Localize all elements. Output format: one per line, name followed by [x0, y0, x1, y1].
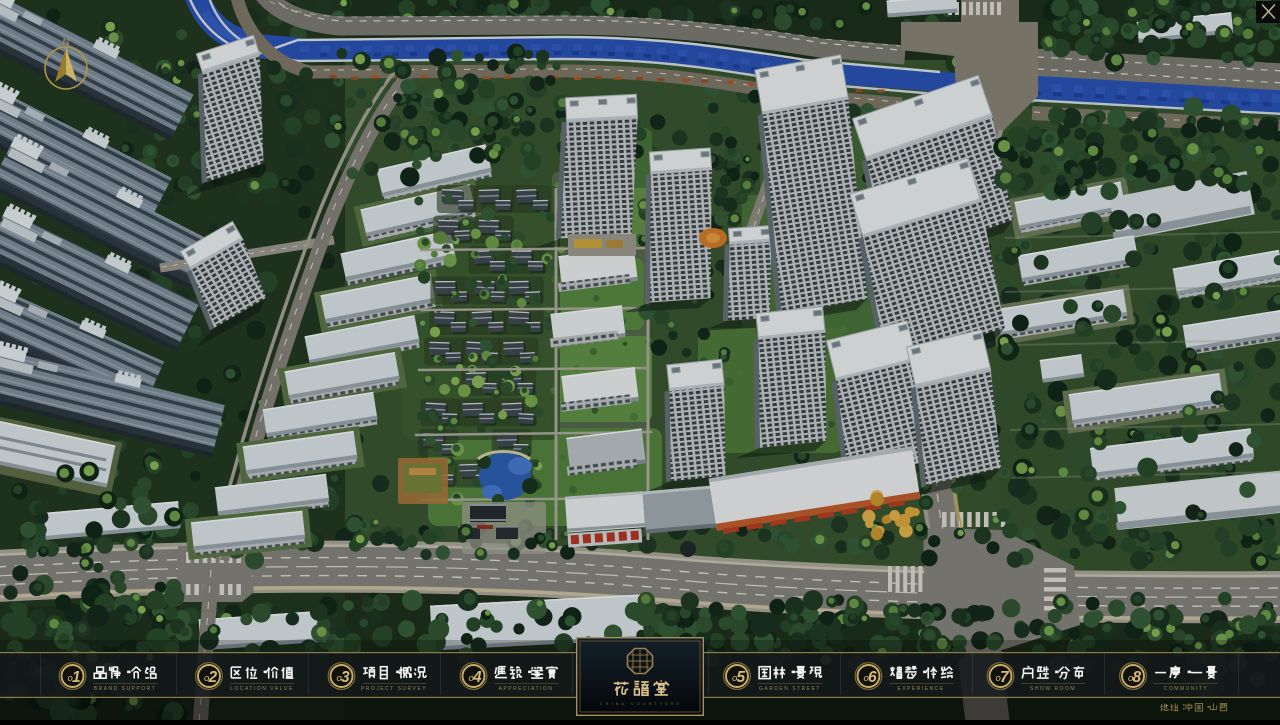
svg-text:2: 2: [208, 669, 218, 686]
svg-text:7: 7: [1000, 669, 1010, 686]
svg-text:PROJECT SURVEY: PROJECT SURVEY: [361, 686, 427, 692]
svg-text:C H I N A · C O U R T Y A R D: C H I N A · C O U R T Y A R D: [600, 702, 680, 706]
svg-text:APPRECIATION: APPRECIATION: [499, 686, 554, 692]
svg-text:4: 4: [472, 669, 482, 686]
svg-text:3: 3: [341, 669, 350, 686]
svg-text:SHOW ROOM: SHOW ROOM: [1030, 686, 1076, 692]
svg-text:BRAND SUPPORT: BRAND SUPPORT: [94, 686, 156, 692]
svg-text:LOCATION VALUE: LOCATION VALUE: [230, 686, 294, 692]
svg-text:EXPERIENCE: EXPERIENCE: [897, 686, 944, 692]
svg-text:1: 1: [72, 669, 81, 686]
svg-text:8: 8: [1133, 669, 1142, 686]
svg-text:5: 5: [737, 669, 746, 686]
svg-text:COMMUNITY: COMMUNITY: [1164, 686, 1208, 692]
svg-text:GARDEN STREET: GARDEN STREET: [759, 686, 821, 692]
svg-text:6: 6: [868, 669, 877, 686]
